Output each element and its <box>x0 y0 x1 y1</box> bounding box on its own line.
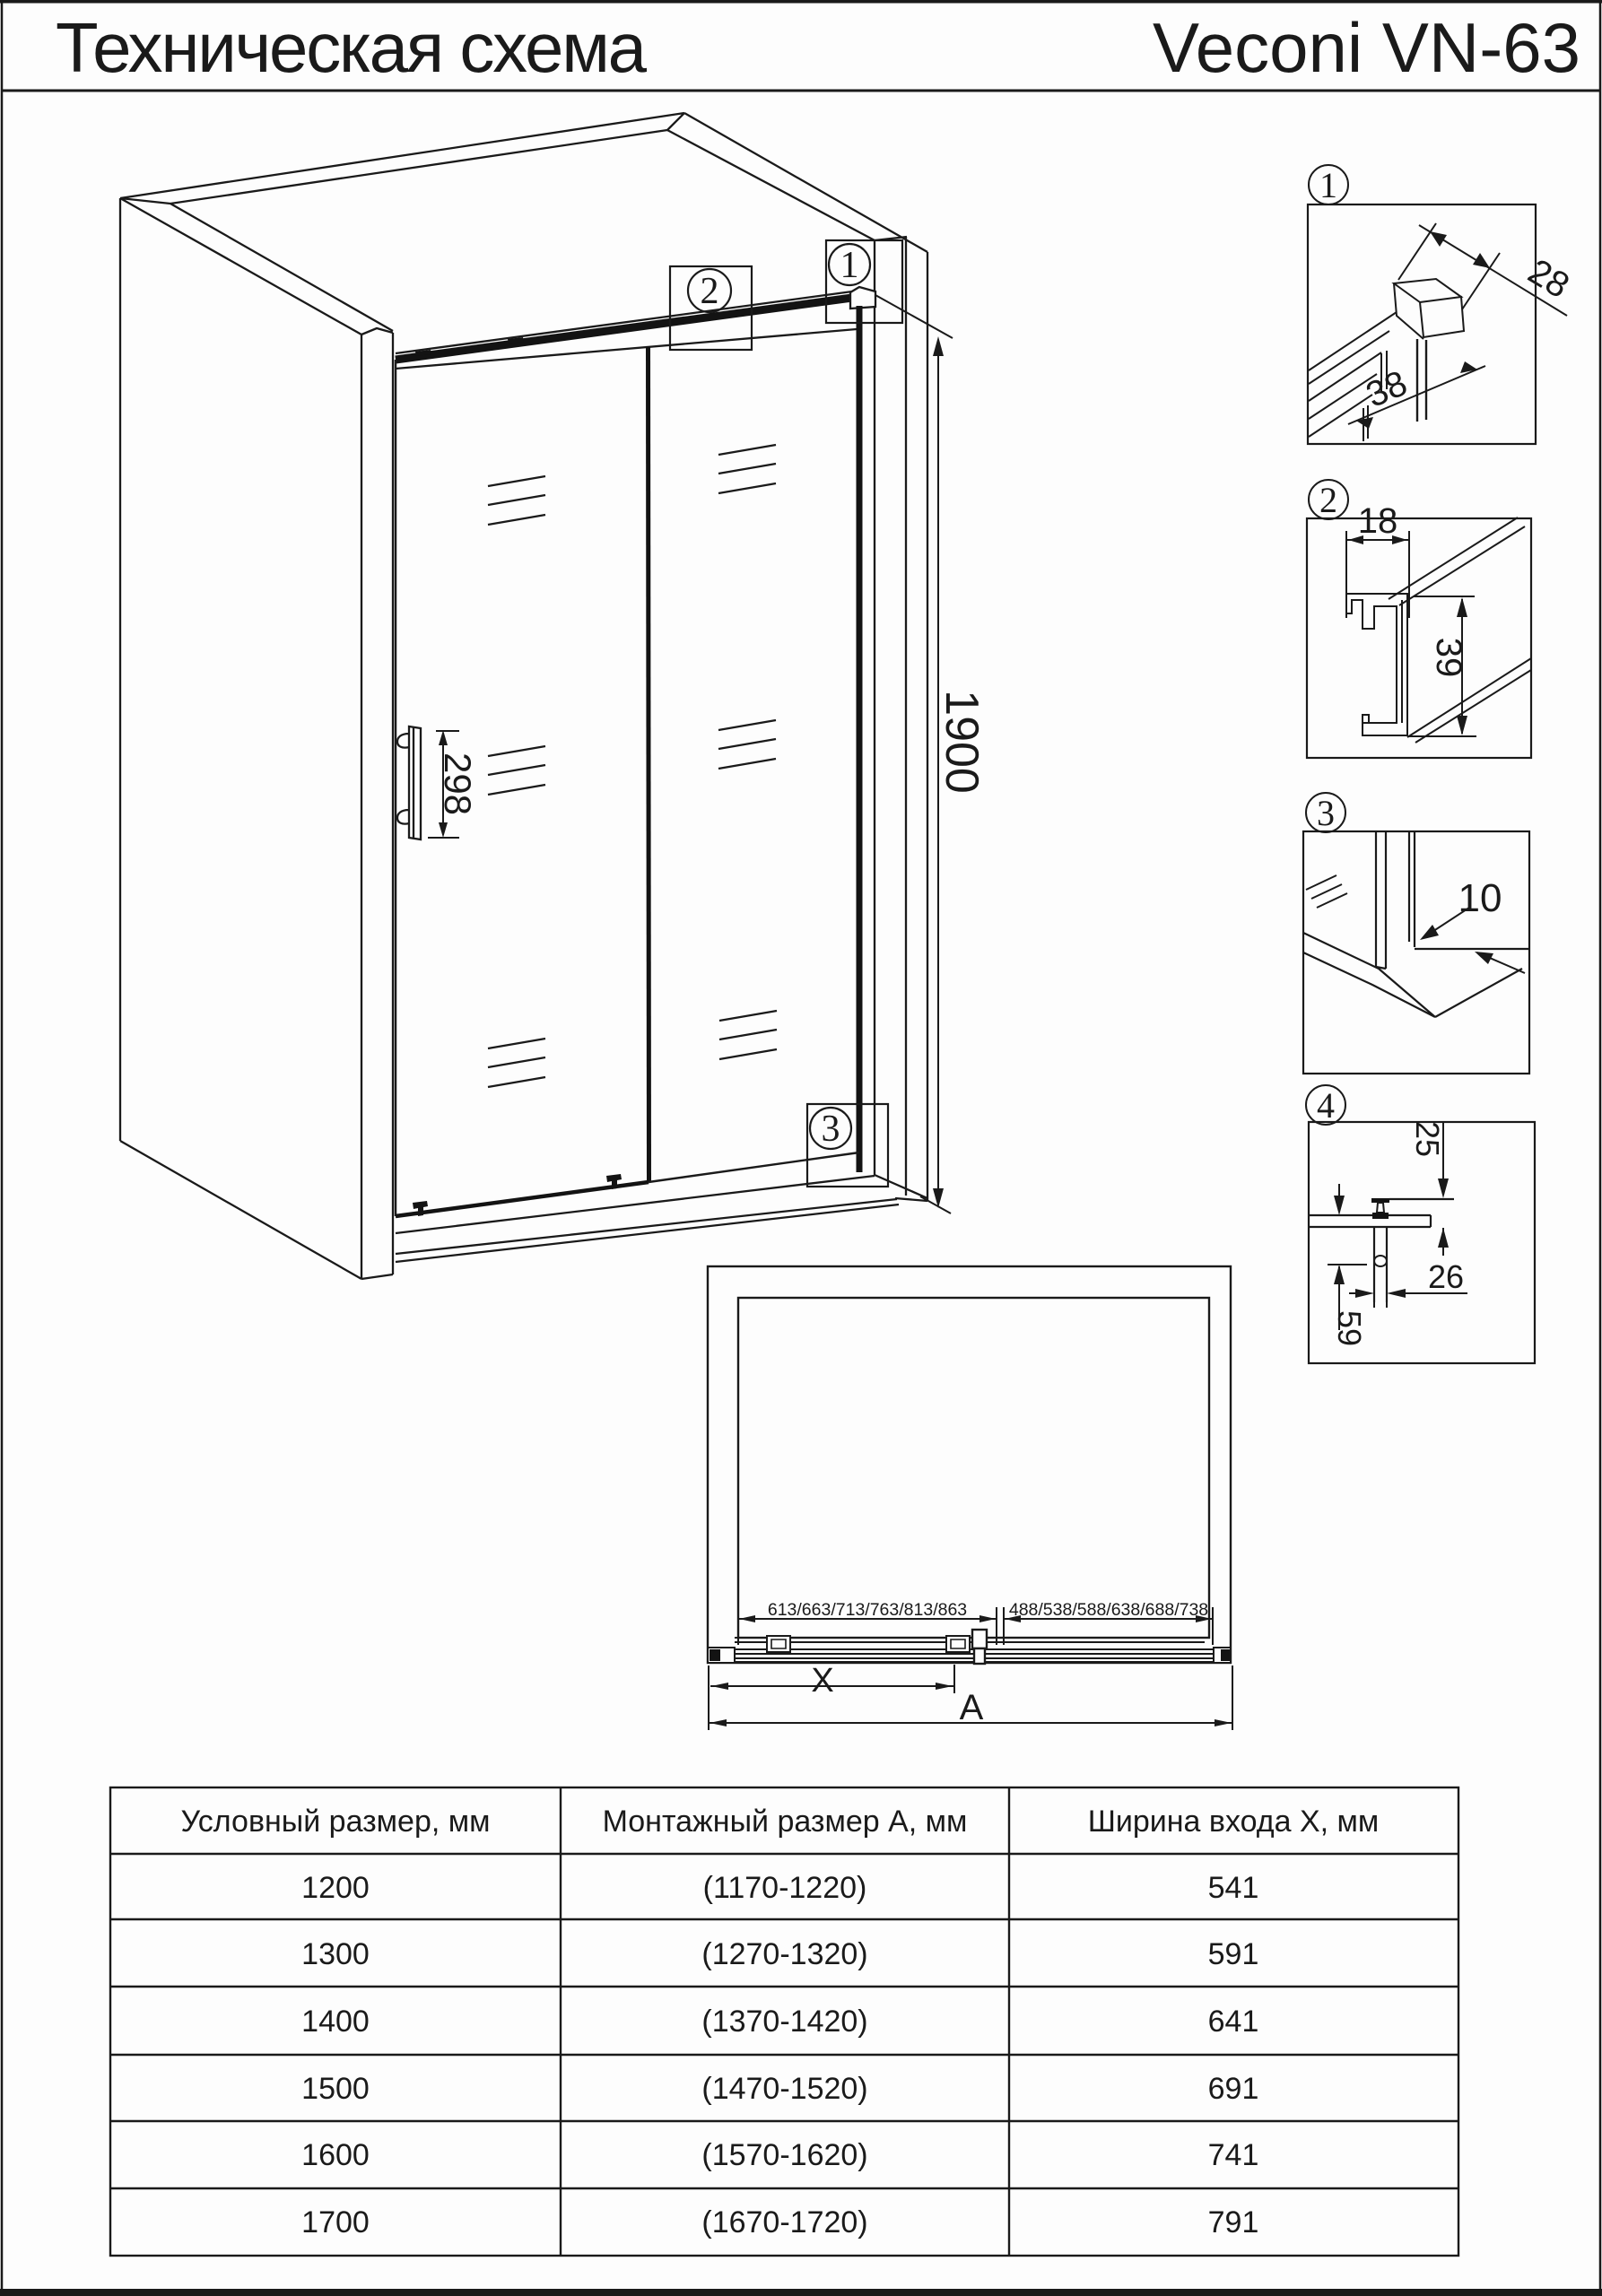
svg-text:613/663/713/763/813/863: 613/663/713/763/813/863 <box>768 1600 967 1620</box>
svg-text:1400: 1400 <box>301 2005 370 2039</box>
svg-text:Техническая схема: Техническая схема <box>56 8 648 87</box>
svg-text:1600: 1600 <box>301 2138 370 2172</box>
svg-text:10: 10 <box>1458 876 1502 920</box>
svg-text:(1370-1420): (1370-1420) <box>701 2005 867 2039</box>
svg-text:641: 641 <box>1208 2005 1259 2039</box>
svg-text:59: 59 <box>1331 1310 1368 1346</box>
svg-text:1300: 1300 <box>301 1937 370 1971</box>
svg-text:(1270-1320): (1270-1320) <box>701 1937 867 1971</box>
svg-text:3: 3 <box>1317 793 1335 833</box>
svg-text:4: 4 <box>1317 1085 1335 1126</box>
svg-text:791: 791 <box>1208 2205 1259 2239</box>
svg-text:488/538/588/638/688/738: 488/538/588/638/688/738 <box>1009 1600 1208 1620</box>
svg-text:(1670-1720): (1670-1720) <box>701 2205 867 2239</box>
svg-text:298: 298 <box>437 752 479 815</box>
svg-text:741: 741 <box>1208 2138 1259 2172</box>
svg-text:Ширина входа X, мм: Ширина входа X, мм <box>1088 1805 1380 1839</box>
svg-text:A: A <box>960 1688 984 1727</box>
svg-text:1900: 1900 <box>936 690 988 794</box>
svg-text:1200: 1200 <box>301 1871 370 1905</box>
svg-text:591: 591 <box>1208 1937 1259 1971</box>
svg-text:(1570-1620): (1570-1620) <box>701 2138 867 2172</box>
svg-text:691: 691 <box>1208 2072 1259 2106</box>
svg-text:1: 1 <box>840 245 859 286</box>
svg-text:Условный размер, мм: Условный размер, мм <box>180 1805 490 1839</box>
svg-text:39: 39 <box>1429 638 1468 678</box>
svg-text:25: 25 <box>1409 1121 1446 1157</box>
svg-text:2: 2 <box>1319 480 1337 520</box>
svg-text:26: 26 <box>1428 1258 1464 1295</box>
svg-text:1: 1 <box>1319 165 1337 205</box>
svg-text:3: 3 <box>822 1109 840 1150</box>
svg-text:2: 2 <box>701 271 719 312</box>
svg-text:541: 541 <box>1208 1871 1259 1905</box>
svg-text:(1170-1220): (1170-1220) <box>703 1871 867 1905</box>
svg-text:1500: 1500 <box>301 2072 370 2106</box>
svg-text:Veconi VN-63: Veconi VN-63 <box>1153 8 1580 87</box>
svg-text:X: X <box>811 1662 833 1700</box>
svg-text:1700: 1700 <box>301 2205 370 2239</box>
svg-text:Монтажный размер А, мм: Монтажный размер А, мм <box>603 1805 968 1839</box>
svg-text:18: 18 <box>1358 501 1398 541</box>
svg-text:(1470-1520): (1470-1520) <box>701 2072 867 2106</box>
